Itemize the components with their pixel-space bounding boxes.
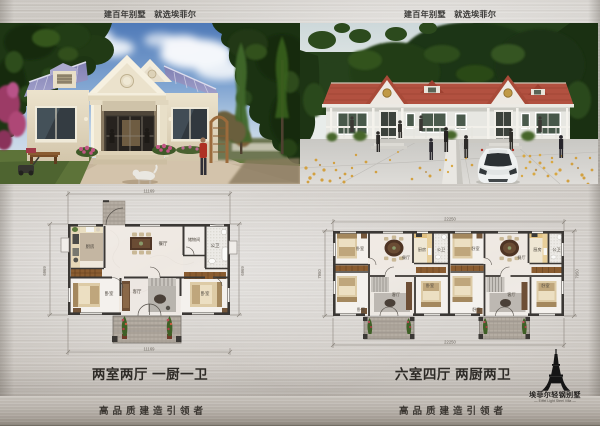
svg-text:卧室: 卧室 (105, 290, 114, 297)
svg-text:公卫: 公卫 (211, 243, 220, 248)
svg-text:客厅: 客厅 (392, 291, 400, 297)
svg-text:卧室: 卧室 (201, 290, 210, 297)
svg-text:22250: 22250 (444, 340, 456, 345)
svg-text:6969: 6969 (42, 266, 47, 276)
svg-text:6969: 6969 (240, 266, 245, 276)
svg-text:客厅: 客厅 (133, 288, 142, 295)
svg-text:22250: 22250 (444, 217, 456, 222)
svg-text:7950: 7950 (318, 269, 322, 279)
svg-text:储物间: 储物间 (188, 236, 201, 243)
svg-text:11169: 11169 (143, 347, 155, 352)
svg-text:卧室: 卧室 (356, 245, 364, 251)
svg-text:11169: 11169 (143, 189, 155, 194)
svg-text:公卫: 公卫 (437, 247, 445, 252)
svg-text:餐厅: 餐厅 (159, 240, 168, 247)
svg-text:卧室: 卧室 (357, 306, 365, 312)
svg-text:厨房: 厨房 (86, 243, 95, 250)
svg-text:7950: 7950 (575, 269, 580, 279)
svg-text:餐厅: 餐厅 (402, 254, 410, 260)
svg-text:厨房: 厨房 (418, 246, 426, 252)
svg-text:卧室: 卧室 (426, 282, 434, 288)
